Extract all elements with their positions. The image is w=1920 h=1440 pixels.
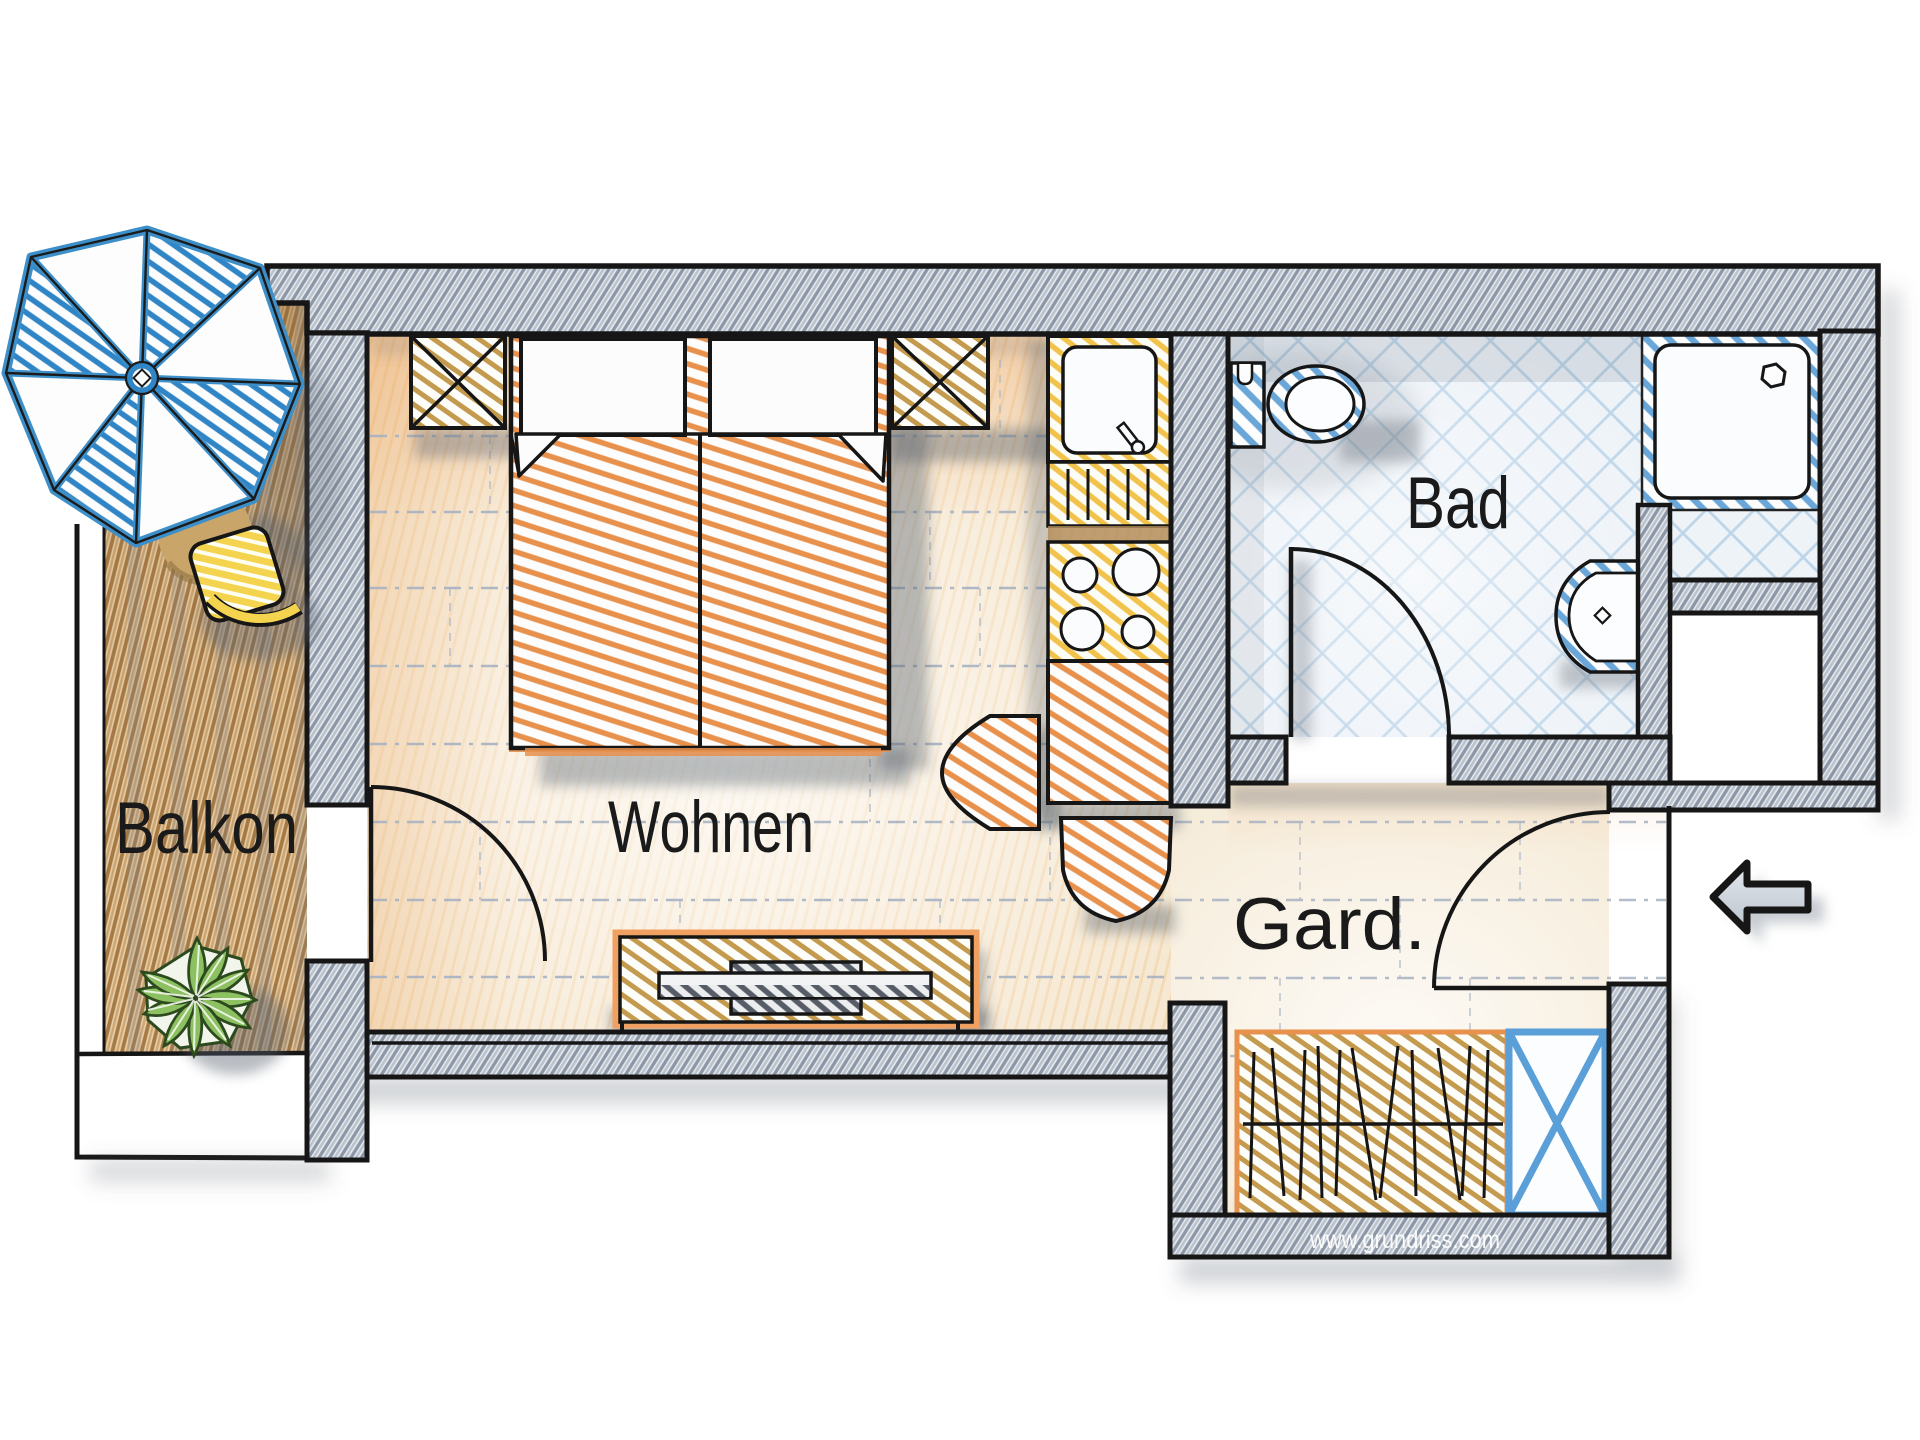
svg-text:Bad: Bad: [1406, 463, 1510, 544]
svg-text:Gard.: Gard.: [1233, 884, 1426, 965]
svg-text:www.grundriss.com: www.grundriss.com: [1309, 1226, 1500, 1254]
svg-text:Balkon: Balkon: [115, 788, 298, 869]
svg-text:Wohnen: Wohnen: [608, 787, 814, 868]
